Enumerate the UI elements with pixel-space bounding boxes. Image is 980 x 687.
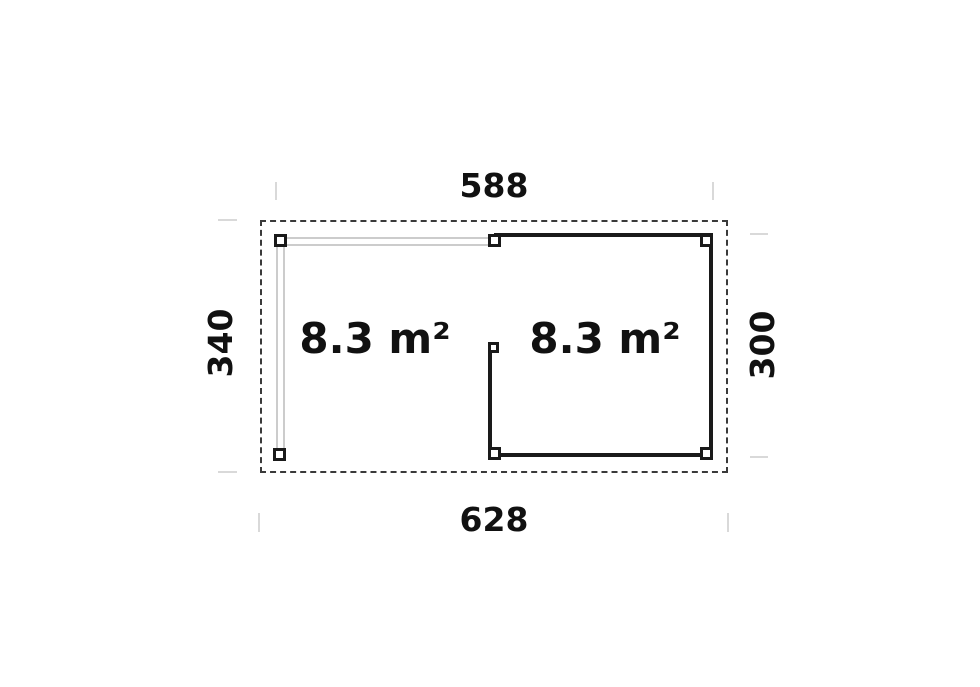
extension-line-left-top xyxy=(218,219,237,221)
room-area-label-terrace: 8.3 m² xyxy=(265,313,485,365)
dimension-label-top: 588 xyxy=(394,168,594,204)
post-bottom-middle xyxy=(488,447,501,460)
extension-line-top-left xyxy=(275,182,277,200)
dimension-label-left: 340 xyxy=(203,243,239,443)
extension-line-right-top xyxy=(750,233,768,235)
extension-line-bottom-left xyxy=(258,513,260,532)
extension-line-bottom-right xyxy=(727,513,729,532)
post-top-left xyxy=(274,234,287,247)
floor-plan-canvas: 588 628 340 300 8.3 m² 8.3 m² xyxy=(0,0,980,687)
terrace-beam-top xyxy=(280,237,494,246)
room-area-label-room: 8.3 m² xyxy=(495,313,715,365)
post-bottom-left xyxy=(273,448,286,461)
extension-line-right-bottom xyxy=(750,456,768,458)
wall-bottom xyxy=(490,453,713,457)
post-bottom-right xyxy=(700,447,713,460)
dimension-label-right: 300 xyxy=(745,245,781,445)
extension-line-left-bottom xyxy=(218,471,237,473)
dimension-label-bottom: 628 xyxy=(394,502,594,538)
extension-line-top-right xyxy=(712,182,714,200)
wall-top xyxy=(494,233,713,237)
wall-partition-left xyxy=(488,345,492,457)
post-top-middle xyxy=(488,234,501,247)
post-top-right xyxy=(700,234,713,247)
